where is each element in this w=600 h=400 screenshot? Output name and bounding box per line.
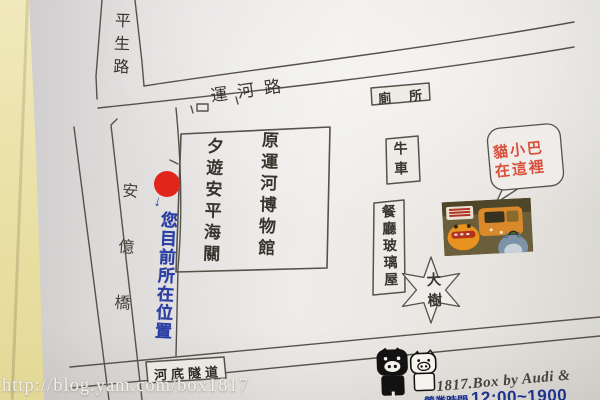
gate-symbol [197,104,208,111]
glass-house-label: 餐廳玻璃屋 [379,204,402,290]
business-hours-value: 12:00~1900 [471,386,568,400]
cat-bus-photo-art [442,198,534,257]
road-tick-left [191,106,193,113]
blog-watermark: http://blog.yam.com/box1817 [2,376,249,397]
photo-of-hand-drawn-map: 平生路 運河路 安億橋 廁所 夕遊安平海關 原運河博物館 牛車 餐廳玻璃屋 大樹… [0,0,600,400]
anyi-bridge-left-line [74,127,109,400]
pingsheng-road-right-line [135,0,144,86]
yunhe-road-bottom-line [98,47,574,108]
road-label-pingsheng: 平生路 [106,12,132,82]
yunhe-road-top-line [144,22,574,86]
business-hours-prefix: 營業時間 [424,395,468,400]
museum-label-right-column: 原運河博物館 [252,131,281,261]
big-tree-label: 大樹 [422,271,445,313]
cat-bus-photo-sticker [442,198,534,257]
ox-cart-label: 牛車 [390,141,411,182]
canal-tick [170,160,178,164]
museum-label-left-column: 夕遊安平海關 [197,137,226,267]
pingsheng-road-left-line [96,0,102,99]
cat-minibus-speech-bubble-text: 貓小巴 在這裡 [492,138,547,181]
